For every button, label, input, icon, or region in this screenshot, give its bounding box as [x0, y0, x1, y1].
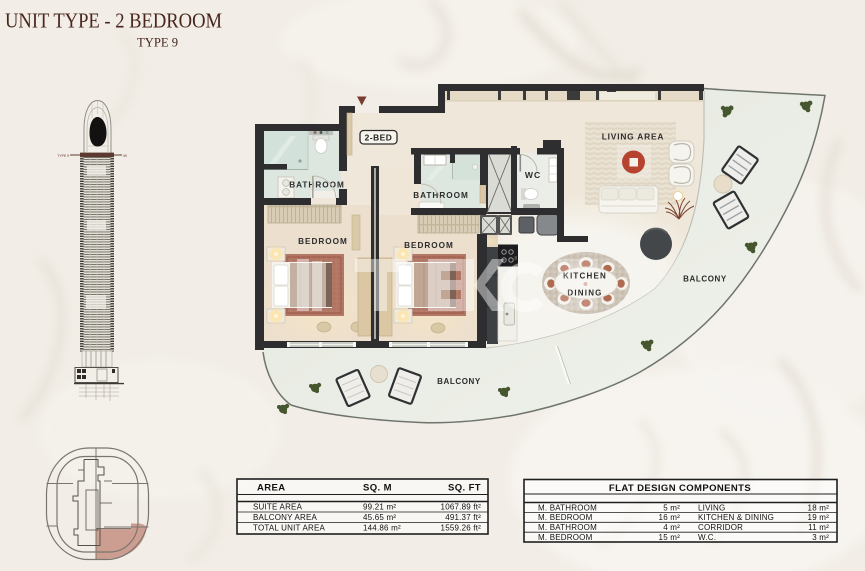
svg-text:BEDROOM: BEDROOM	[298, 237, 348, 246]
svg-text:16 m²: 16 m²	[659, 513, 681, 522]
svg-text:FLAT DESIGN COMPONENTS: FLAT DESIGN COMPONENTS	[609, 483, 751, 494]
svg-text:M. BATHROOM: M. BATHROOM	[538, 523, 597, 532]
svg-text:1559.26 ft²: 1559.26 ft²	[441, 524, 482, 533]
svg-text:BEDROOM: BEDROOM	[404, 241, 454, 250]
svg-text:45.65 m²: 45.65 m²	[363, 513, 396, 522]
svg-text:BALCONY AREA: BALCONY AREA	[253, 513, 318, 522]
svg-text:19 m²: 19 m²	[808, 513, 830, 522]
svg-text:WC: WC	[525, 170, 541, 180]
svg-text:SQ. M: SQ. M	[363, 483, 392, 494]
svg-text:144.86 m²: 144.86 m²	[363, 524, 401, 533]
svg-text:4 m²: 4 m²	[663, 523, 680, 532]
svg-text:BATHROOM: BATHROOM	[413, 191, 469, 200]
svg-text:11 m²: 11 m²	[808, 523, 829, 532]
svg-text:UNIT TYPE - 2 BEDROOM: UNIT TYPE - 2 BEDROOM	[5, 9, 222, 33]
svg-text:TYPE 9: TYPE 9	[57, 154, 69, 158]
svg-text:M. BATHROOM: M. BATHROOM	[538, 503, 597, 512]
svg-text:BATHROOM: BATHROOM	[289, 181, 345, 190]
svg-text:CORRIDOR: CORRIDOR	[698, 523, 743, 532]
svg-text:99.21 m²: 99.21 m²	[363, 503, 396, 512]
svg-text:W.C.: W.C.	[698, 533, 716, 542]
svg-text:LIVING AREA: LIVING AREA	[602, 132, 664, 142]
svg-text:SQ. FT: SQ. FT	[448, 483, 481, 494]
svg-text:TYPE 9: TYPE 9	[137, 35, 178, 50]
svg-text:491.37 ft²: 491.37 ft²	[445, 513, 481, 522]
svg-text:18 m²: 18 m²	[808, 503, 830, 512]
svg-text:M. BEDROOM: M. BEDROOM	[538, 533, 593, 542]
svg-text:5 m²: 5 m²	[663, 503, 680, 512]
svg-text:LIVING: LIVING	[698, 503, 725, 512]
svg-text:49: 49	[123, 154, 127, 158]
svg-text:3 m²: 3 m²	[812, 533, 829, 542]
svg-text:KITCHEN & DINING: KITCHEN & DINING	[698, 513, 774, 522]
svg-text:SUITE AREA: SUITE AREA	[253, 503, 303, 512]
svg-text:2-BED: 2-BED	[365, 133, 393, 143]
svg-text:AREA: AREA	[257, 483, 286, 494]
svg-text:TOTAL UNIT AREA: TOTAL UNIT AREA	[253, 524, 326, 533]
svg-text:M. BEDROOM: M. BEDROOM	[538, 513, 593, 522]
svg-text:BALCONY: BALCONY	[437, 377, 481, 386]
svg-text:BALCONY: BALCONY	[683, 275, 727, 284]
svg-text:15 m²: 15 m²	[659, 533, 681, 542]
svg-text:1067.89 ft²: 1067.89 ft²	[441, 503, 482, 512]
